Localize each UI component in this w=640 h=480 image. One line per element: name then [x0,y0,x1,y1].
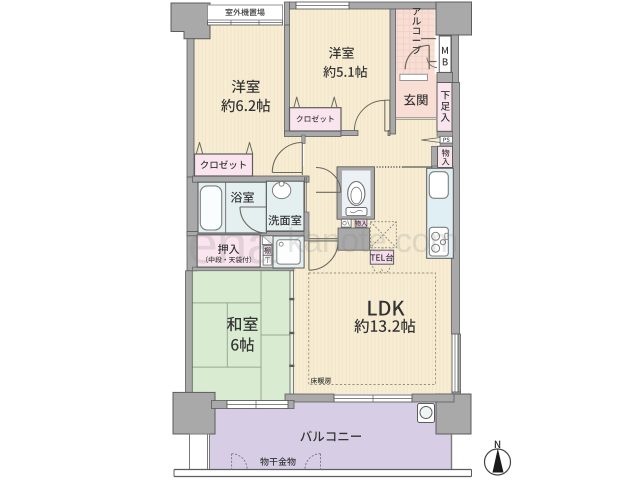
svg-text:iena: iena [176,213,277,275]
svg-text:kanote.com: kanote.com [287,222,458,260]
